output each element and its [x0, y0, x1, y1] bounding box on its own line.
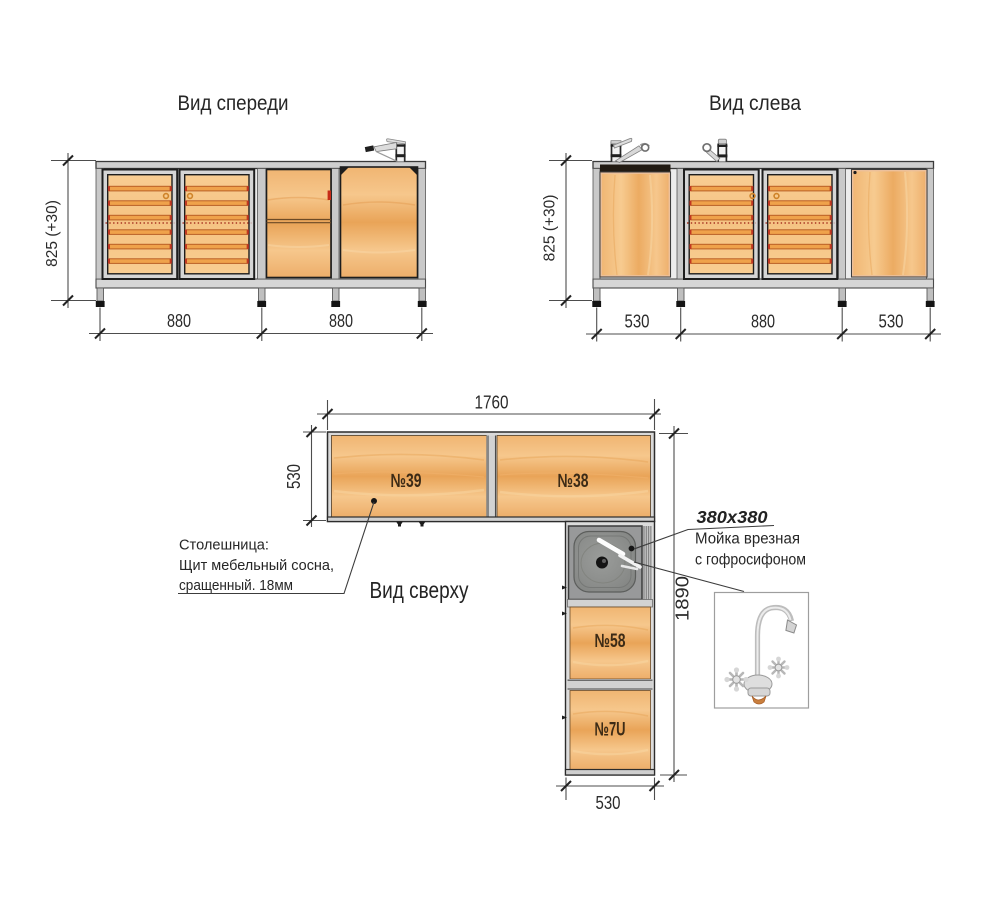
- svg-text:530: 530: [284, 464, 304, 489]
- svg-text:530: 530: [625, 312, 650, 332]
- svg-text:Вид слева: Вид слева: [709, 92, 801, 115]
- svg-text:1890: 1890: [673, 576, 693, 621]
- svg-text:825 (+30): 825 (+30): [44, 200, 61, 267]
- svg-text:№39: №39: [391, 471, 422, 492]
- svg-text:530: 530: [879, 312, 904, 332]
- svg-text:880: 880: [329, 311, 353, 331]
- svg-text:сращенный. 18мм: сращенный. 18мм: [179, 577, 293, 594]
- svg-text:825 (+30): 825 (+30): [542, 195, 559, 262]
- svg-text:380x380: 380x380: [697, 507, 768, 527]
- svg-text:Щит мебельный сосна,: Щит мебельный сосна,: [179, 557, 334, 574]
- svg-text:№38: №38: [558, 471, 589, 492]
- svg-text:с гофросифоном: с гофросифоном: [695, 552, 806, 569]
- svg-text:№7U: №7U: [595, 720, 626, 741]
- svg-text:Вид сверху: Вид сверху: [370, 577, 469, 603]
- svg-text:530: 530: [596, 793, 621, 813]
- svg-text:№58: №58: [595, 631, 626, 652]
- svg-text:1760: 1760: [475, 393, 509, 413]
- svg-text:Мойка врезная: Мойка врезная: [695, 531, 800, 548]
- svg-text:Столешница:: Столешница:: [179, 537, 269, 554]
- svg-text:880: 880: [751, 312, 775, 332]
- svg-text:880: 880: [167, 311, 191, 331]
- svg-text:Вид спереди: Вид спереди: [178, 92, 289, 115]
